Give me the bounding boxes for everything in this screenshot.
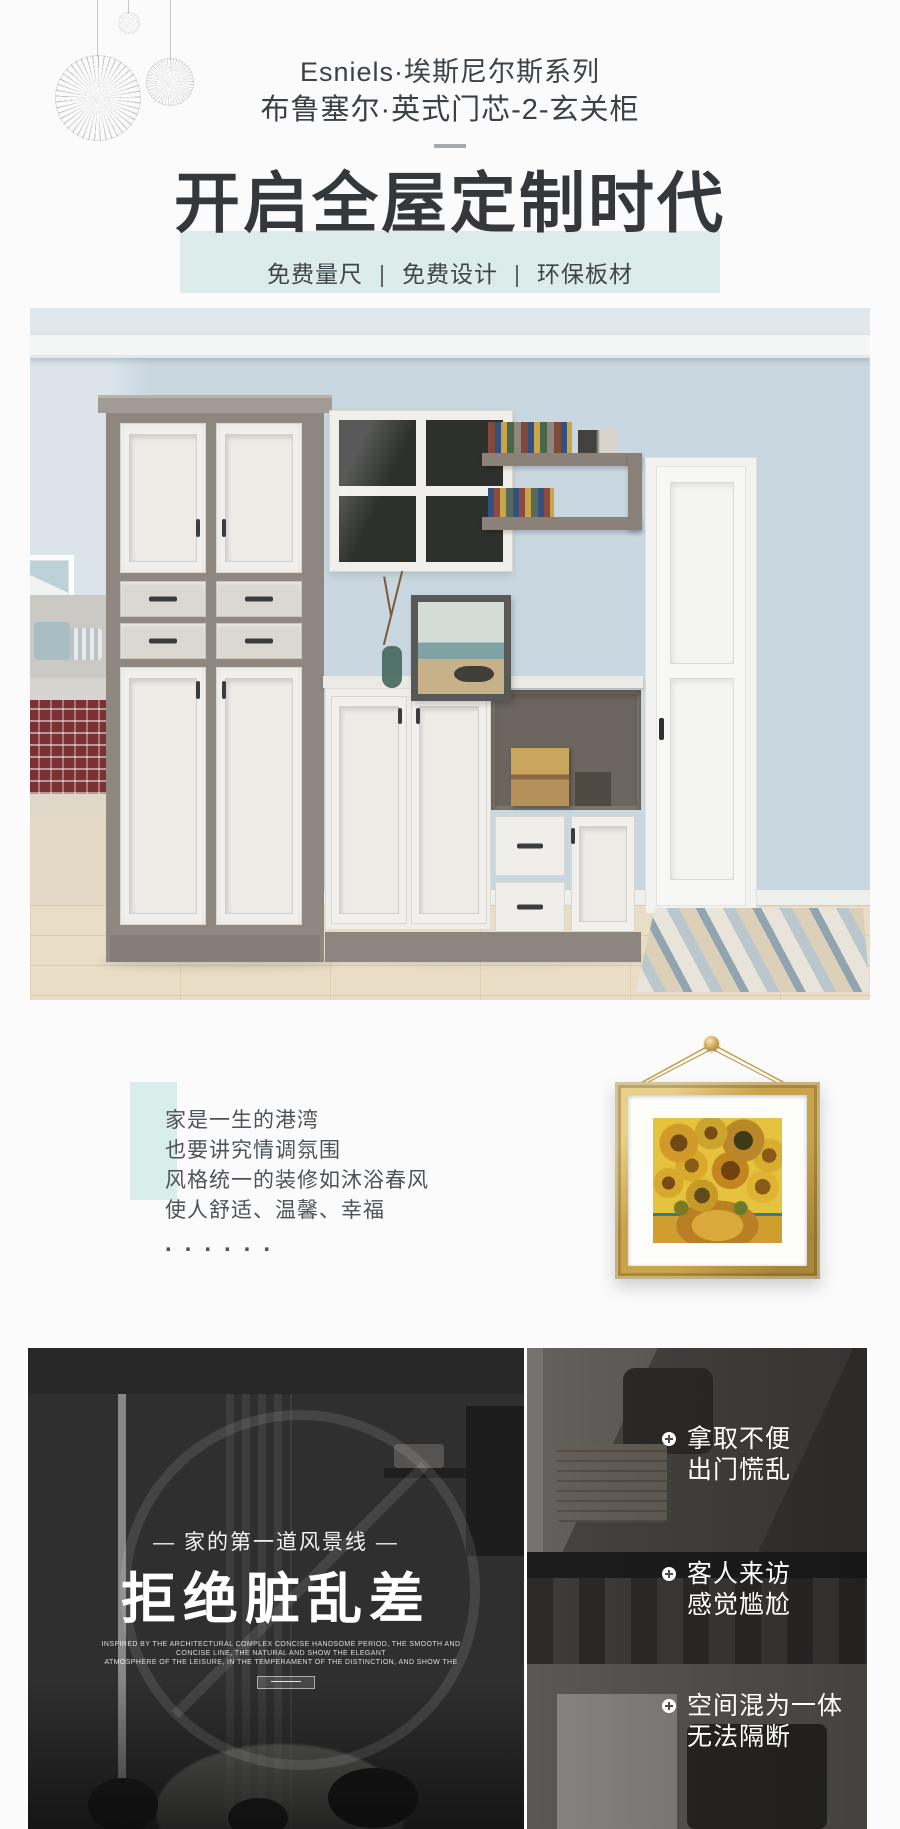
dandelion-ball-icon [118,12,140,34]
cluttered-closet-photo: 拿取不便 出门慌乱 客人来访 感觉尴尬 空间混为一体 无法隔断 [527,1348,867,1829]
pain-subtext-line: ATMOSPHERE OF THE LEISURE, IN THE TEMPER… [86,1658,476,1667]
series-title: Esniels·埃斯尼尔斯系列 [0,50,900,89]
benefit-list: 免费量尺|免费设计|环保板材 [0,255,900,289]
pain-bullet-3: 空间混为一体 无法隔断 [662,1691,843,1753]
painting-mat [628,1095,807,1266]
pain-bullet-1: 拿取不便 出门慌乱 [662,1424,791,1486]
pain-bullet-2: 客人来访 感觉尴尬 [662,1559,791,1621]
wardrobe-plinth [110,935,320,962]
sofa-cushion [34,622,70,660]
intro-line: 风格统一的装修如沐浴春风 [165,1166,585,1196]
benefit-separator: | [379,261,386,287]
sunflower-painting [615,1082,820,1279]
shelf-decor [578,430,618,453]
pain-headline-block: — 家的第一道风景线 — 拒绝脏乱差 INSPIRED BY THE ARCHI… [28,1348,524,1829]
page-headline: 开启全屋定制时代 [0,150,900,246]
decor-branch [383,571,403,645]
pain-subtext-line: INSPIRED BY THE ARCHITECTURAL COMPLEX CO… [86,1640,476,1658]
sideboard-door [571,816,635,932]
pain-title: 拒绝脏乱差 [28,1554,524,1634]
wardrobe-door [216,667,302,925]
wardrobe-drawer [216,581,302,617]
sideboard-plinth [325,932,641,962]
hero-room-photo [30,308,870,1000]
wardrobe-cornice [98,395,332,413]
intro-copy: 家是一生的港湾 也要讲究情调氛围 风格统一的装修如沐浴春风 使人舒适、温馨、幸福 [165,1106,585,1226]
door-panel [670,482,734,664]
ornament-string [97,0,98,57]
storage-box [575,772,611,806]
product-title: 布鲁塞尔·英式门芯-2-玄关柜 [0,86,900,128]
bullet-line: 客人来访 [687,1559,791,1590]
wardrobe-drawer [216,623,302,659]
interior-door [656,466,746,906]
decor-mini-box [257,1676,315,1689]
sideboard-door [411,696,487,924]
entry-wardrobe [106,395,324,962]
intro-line: 也要讲究情调氛围 [165,1136,585,1166]
hanging-nail-icon [704,1036,719,1051]
intro-ellipsis: ...... [165,1230,283,1258]
ceiling [30,308,870,335]
glass-wall-cabinet [330,411,512,571]
plus-circle-icon [662,1432,676,1446]
bullet-line: 空间混为一体 [687,1691,843,1722]
wardrobe-door [216,423,302,573]
storage-boxes [511,748,569,806]
door-panel [670,678,734,880]
wall-shelf [482,517,642,530]
pain-tagline: — 家的第一道风景线 — [28,1526,524,1556]
sideboard-drawer [495,882,565,932]
decor-bowl [454,666,494,682]
benefit-separator: | [514,261,521,287]
sideboard-cabinet [323,676,643,962]
benefit-free-measure: 免费量尺 [267,261,363,287]
intro-line: 使人舒适、温馨、幸福 [165,1196,585,1226]
geometric-rug [636,908,870,992]
pain-subtext-en: INSPIRED BY THE ARCHITECTURAL COMPLEX CO… [86,1640,476,1667]
green-vase [382,646,402,688]
wardrobe-drawer [120,581,206,617]
sideboard-drawer [495,816,565,876]
wall-shelf [482,453,642,466]
plus-circle-icon [662,1567,676,1581]
benefit-eco-board: 环保板材 [537,261,633,287]
plus-circle-icon [662,1699,676,1713]
pain-point-section: — 家的第一道风景线 — 拒绝脏乱差 INSPIRED BY THE ARCHI… [28,1348,867,1829]
intro-line: 家是一生的港湾 [165,1106,585,1136]
bullet-line: 感觉尴尬 [687,1590,791,1621]
sideboard-door [331,696,407,924]
book-row [488,422,572,453]
sunflower-artwork [653,1118,782,1243]
title-divider [434,144,466,148]
sofa-cushion [70,628,102,660]
bullet-line: 出门慌乱 [687,1455,791,1486]
benefit-free-design: 免费设计 [402,261,498,287]
leaning-picture-frame [411,595,511,701]
wardrobe-drawer [120,623,206,659]
bullet-line: 无法隔断 [687,1722,843,1753]
messy-room-photo: — 家的第一道风景线 — 拒绝脏乱差 INSPIRED BY THE ARCHI… [28,1348,524,1829]
wardrobe-door [120,423,206,573]
crown-molding [30,335,870,358]
door-handle [659,718,664,740]
wardrobe-door [120,667,206,925]
product-detail-page: Esniels·埃斯尼尔斯系列 布鲁塞尔·英式门芯-2-玄关柜 开启全屋定制时代… [0,0,900,1829]
book-row [488,488,554,517]
bullet-line: 拿取不便 [687,1424,791,1455]
